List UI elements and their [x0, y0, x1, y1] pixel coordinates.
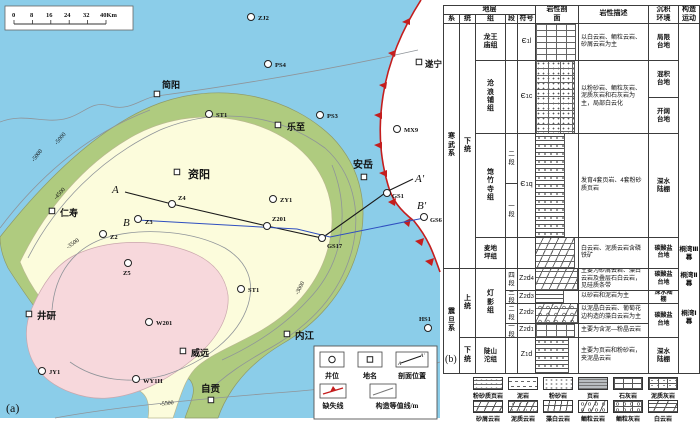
header-desc: 岩性描述 — [578, 5, 649, 24]
sym-e1c: Є1c — [517, 60, 536, 134]
system-cambrian: 寒武系 — [443, 23, 460, 269]
scale-tick: 0 — [12, 12, 15, 19]
panel-a-label: (a) — [6, 401, 19, 415]
legend-well-icon — [329, 356, 335, 362]
litho-swatch-shale — [578, 377, 608, 390]
legend-place-icon — [367, 357, 373, 363]
env-1: 混积台地 — [648, 60, 679, 98]
legend-section-label: 剖面位置 — [398, 371, 426, 380]
profile-canglangpu — [535, 60, 579, 134]
town-label: 安岳 — [353, 158, 373, 171]
fm-maidiping: 麦地坪组 — [475, 237, 506, 269]
town-label: 资阳 — [188, 167, 210, 181]
profile-dengying2 — [535, 303, 579, 324]
scale-tick: 32 — [83, 12, 90, 19]
town-label: 遂宁 — [425, 59, 443, 69]
litho-swatch-argillaceous-limestone — [648, 377, 678, 390]
litho-swatch-dolomite — [648, 400, 678, 413]
env-2: 开阔台地 — [648, 97, 679, 134]
well-label: GS6 — [430, 217, 443, 224]
well-label: GS1 — [392, 193, 404, 200]
well-label: Z201 — [272, 216, 286, 223]
desc-dengying4: 主要为砂屑云岩、藻白云岩及叠层石白云岩，见硅质条带 — [578, 268, 649, 291]
litho-label: 泥质灰岩 — [641, 391, 685, 400]
sym-e1l: Є1l — [517, 23, 536, 61]
sym-e1q: Є1q — [517, 133, 536, 238]
sym-z2d4: Z2d4 — [517, 268, 536, 291]
profile-qiongzhusi — [535, 133, 579, 238]
desc-dengying2: 以泥晶白云岩、葡萄花边构造的藻白云岩为主 — [578, 303, 649, 324]
scale-tick: 40Km — [100, 12, 118, 19]
well-label: Z3 — [145, 219, 153, 226]
figure-two-panel: -5500 -5000 -5000 -4500 -3500 -3000 A A′… — [0, 0, 700, 423]
well-label: Z4 — [178, 195, 186, 202]
env-7: 碳酸盐台地 — [648, 303, 679, 338]
section-label-b: B — [123, 217, 130, 229]
section-label-b2: B′ — [417, 200, 427, 212]
town-label: 井研 — [37, 310, 57, 322]
fm-canglangpu: 沧浪铺组 — [475, 60, 506, 134]
well-label: Z2 — [110, 234, 118, 241]
town-label: 自贡 — [201, 383, 221, 395]
profile-dengying1 — [535, 323, 579, 338]
profile-maidiping — [535, 237, 579, 269]
sym-empty — [517, 237, 536, 269]
desc-qiongzhusi: 发育4套页岩、4套粉砂质页岩 — [578, 133, 649, 238]
legend-fault-label: 缺失线 — [322, 401, 344, 410]
series-lower-cambrian: 下统 — [459, 23, 476, 269]
panel-b-label: (b) — [445, 354, 457, 365]
scale-bar: 0 8 16 24 32 40Km — [5, 6, 133, 30]
litho-swatch-silty-shale — [473, 377, 503, 390]
town-label: 内江 — [295, 330, 315, 342]
town-label: 威远 — [191, 347, 210, 358]
env-8: 深水陆棚 — [648, 337, 679, 374]
fm-longwangmiao: 龙王庙组 — [475, 23, 506, 61]
header-profile: 岩性剖面 — [535, 5, 579, 24]
well-label: ZY1 — [280, 197, 292, 204]
litho-swatch-arenaceous-dolomite — [473, 400, 503, 413]
litho-label: 白云岩 — [641, 414, 685, 423]
scale-tick: 24 — [64, 12, 71, 19]
litho-swatch-oolitic-limestone — [613, 400, 643, 413]
sym-z1d: Z1d — [517, 337, 536, 374]
profile-doushantuo — [535, 337, 579, 374]
town-label: 乐至 — [287, 121, 305, 132]
well-label: W201 — [156, 320, 172, 327]
legend-contour-label: 构造等值线/m — [376, 401, 419, 410]
legend-section-a2: A′ — [419, 353, 425, 359]
legend-place-label: 地名 — [363, 371, 377, 380]
desc-longwangmiao: 以白云岩、鲕粒云岩、砂屑云岩为主 — [578, 23, 649, 61]
profile-longwangmiao — [535, 23, 579, 61]
env-6: 深水陆棚 — [648, 290, 679, 304]
sym-z2d1: Z2d1 — [517, 323, 536, 338]
tect-tongwan-3: 桐湾Ⅲ幕 — [679, 246, 699, 262]
desc-dengying3: 以砂岩和泥岩为主 — [578, 290, 649, 304]
series-lower-sinian: 下统 — [459, 337, 476, 374]
section-label-a2: A′ — [414, 173, 425, 185]
well-label: GS17 — [327, 243, 343, 250]
fm-doushantuo: 陡山沱组 — [475, 337, 506, 374]
tect-tongwan-1: 桐湾Ⅰ幕 — [679, 310, 699, 326]
litho-swatch-siltstone — [543, 377, 573, 390]
profile-dengying4 — [535, 268, 579, 291]
series-upper-sinian: 上统 — [459, 268, 476, 338]
well-label: WY1H — [143, 378, 163, 385]
profile-dengying3 — [535, 290, 579, 304]
litho-swatch-limestone — [613, 377, 643, 390]
map-legend: A A′ 井位 地名 剖面位置 缺失线 构造等值线/m — [314, 346, 437, 419]
section-label-a: A — [111, 184, 119, 196]
well-label: ST1 — [248, 287, 259, 294]
well-label: HS1 — [419, 316, 431, 323]
desc-maidiping: 白云岩、泥质云岩含磷铁矿 — [578, 237, 649, 269]
scale-tick: 16 — [46, 12, 53, 19]
well-label: MX9 — [404, 127, 419, 134]
env-0: 局限台地 — [648, 23, 679, 61]
desc-doushantuo: 主要为页岩和粉砂岩，夹泥晶云岩 — [578, 337, 649, 374]
litho-swatch-argillaceous-dolomite — [508, 400, 538, 413]
well-label: ST1 — [216, 112, 227, 119]
legend-section-a: A — [397, 361, 402, 367]
sym-z2d2: Z2d2 — [517, 303, 536, 324]
env-3: 深水陆棚 — [648, 133, 679, 238]
header-tect: 构造运动 — [678, 5, 700, 24]
well-label: ZJ2 — [258, 15, 269, 22]
desc-canglangpu: 以粉砂岩、鲕粒灰岩、泥质灰岩和石灰岩为主，局部白云化 — [578, 60, 649, 134]
town-label: 仁寿 — [60, 207, 78, 218]
desc-dengying1: 主要为含泥—粉晶云岩 — [578, 323, 649, 338]
well-label: PS3 — [327, 113, 339, 120]
env-5: 碳酸盐台地 — [648, 268, 679, 291]
env-4: 碳酸盐台地 — [648, 237, 679, 269]
town-label: 简阳 — [162, 79, 180, 90]
litho-swatch-algal-dolomite — [543, 400, 573, 413]
well-label: PS4 — [275, 62, 287, 69]
sym-z2d3: Z2d3 — [517, 290, 536, 304]
tect-column: 桐湾Ⅲ幕 桐湾Ⅱ幕 桐湾Ⅰ幕 — [678, 23, 700, 374]
well-label: JY1 — [49, 369, 60, 376]
tect-tongwan-2: 桐湾Ⅱ幕 — [679, 272, 699, 288]
litho-swatch-mudstone — [508, 377, 538, 390]
litho-swatch-oolitic-dolomite — [578, 400, 608, 413]
legend-well-label: 井位 — [325, 371, 339, 380]
structure-map: -5500 -5000 -5000 -4500 -3500 -3000 A A′… — [0, 0, 440, 423]
header-env: 沉积环境 — [648, 5, 679, 24]
fm-qiongzhusi: 筇竹寺组 — [475, 133, 506, 238]
well-label: Z5 — [123, 270, 131, 277]
fm-dengying: 灯影组 — [475, 268, 506, 338]
